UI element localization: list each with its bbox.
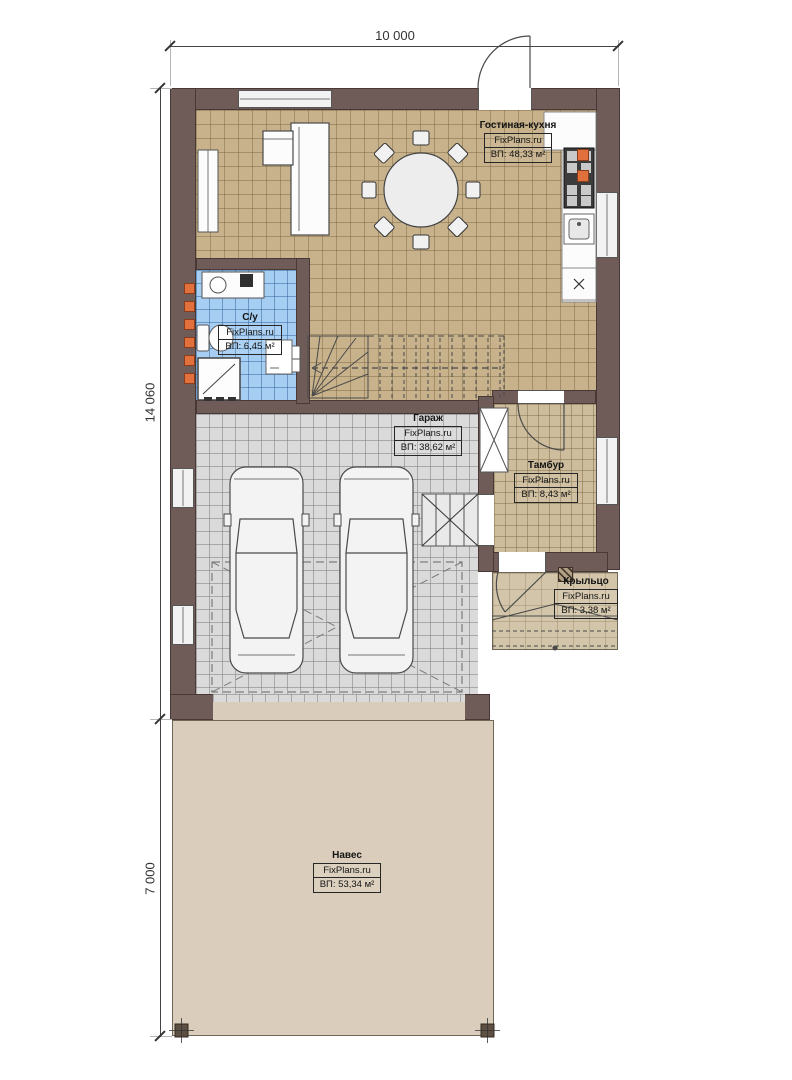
room-name: Тамбур <box>506 460 586 471</box>
door-opening-living-tambour <box>518 390 564 404</box>
window-right-kitchen <box>596 192 618 258</box>
window-left-garage-2 <box>172 605 194 645</box>
label-tambour: Тамбур FixPlans.ru ВП: 8,43 м² <box>506 460 586 503</box>
window-left-garage-1 <box>172 468 194 508</box>
brand-text: FixPlans.ru <box>555 590 616 604</box>
garage-door-sill <box>213 694 465 702</box>
dimension-height-house: 14 060 <box>143 373 158 433</box>
door-arc-top-exterior <box>478 36 530 88</box>
room-area: ВП: 6,45 м² <box>219 340 280 353</box>
label-canopy: Навес FixPlans.ru ВП: 53,34 м² <box>306 850 388 893</box>
wall-bath-right <box>296 258 310 404</box>
floor-plan: Гостиная-кухня FixPlans.ru ВП: 48,33 м² … <box>0 0 792 1080</box>
room-name: Крыльцо <box>548 576 624 587</box>
room-area: ВП: 53,34 м² <box>314 878 381 891</box>
room-name: Гараж <box>388 413 468 424</box>
door-opening-porch-entry <box>498 552 546 572</box>
brand-text: FixPlans.ru <box>485 134 552 148</box>
brand-text: FixPlans.ru <box>219 326 280 340</box>
door-opening-garage-tambour <box>478 494 494 546</box>
wall-vent-marker <box>184 301 195 312</box>
dimension-line-canopy <box>160 720 161 1037</box>
brand-text: FixPlans.ru <box>395 427 462 441</box>
window-top-living <box>238 90 332 108</box>
label-living-kitchen: Гостиная-кухня FixPlans.ru ВП: 48,33 м² <box>452 120 584 163</box>
room-name: Навес <box>306 850 388 861</box>
wall-vent-marker <box>184 319 195 330</box>
room-area: ВП: 38,62 м² <box>395 441 462 454</box>
wall-vent-marker <box>184 283 195 294</box>
label-bathroom: С/у FixPlans.ru ВП: 6,45 м² <box>212 312 288 355</box>
room-area: ВП: 3,38 м² <box>555 604 616 617</box>
wall-vent-marker <box>577 170 589 182</box>
label-garage: Гараж FixPlans.ru ВП: 38,62 м² <box>388 413 468 456</box>
dimension-line-house <box>160 88 161 720</box>
room-area: ВП: 8,43 м² <box>515 488 576 501</box>
brand-text: FixPlans.ru <box>314 864 381 878</box>
wall-vent-marker <box>184 337 195 348</box>
garage-floor <box>196 414 478 694</box>
room-name: Гостиная-кухня <box>452 120 584 131</box>
room-area: ВП: 48,33 м² <box>485 148 552 161</box>
dimension-line-top <box>170 46 619 47</box>
label-porch: Крыльцо FixPlans.ru ВП: 3,38 м² <box>548 576 624 619</box>
room-name: С/у <box>212 312 288 323</box>
dimension-height-canopy: 7 000 <box>143 849 158 909</box>
dimension-width-total: 10 000 <box>345 28 445 43</box>
brand-text: FixPlans.ru <box>515 474 576 488</box>
wall-bath-top <box>196 258 308 270</box>
window-right-tambour <box>596 437 618 505</box>
wall-vent-marker <box>184 355 195 366</box>
wall-living-garage <box>196 400 492 414</box>
wall-vent-marker <box>184 373 195 384</box>
door-opening-top-exterior <box>478 88 532 110</box>
garage-apron <box>213 702 465 720</box>
